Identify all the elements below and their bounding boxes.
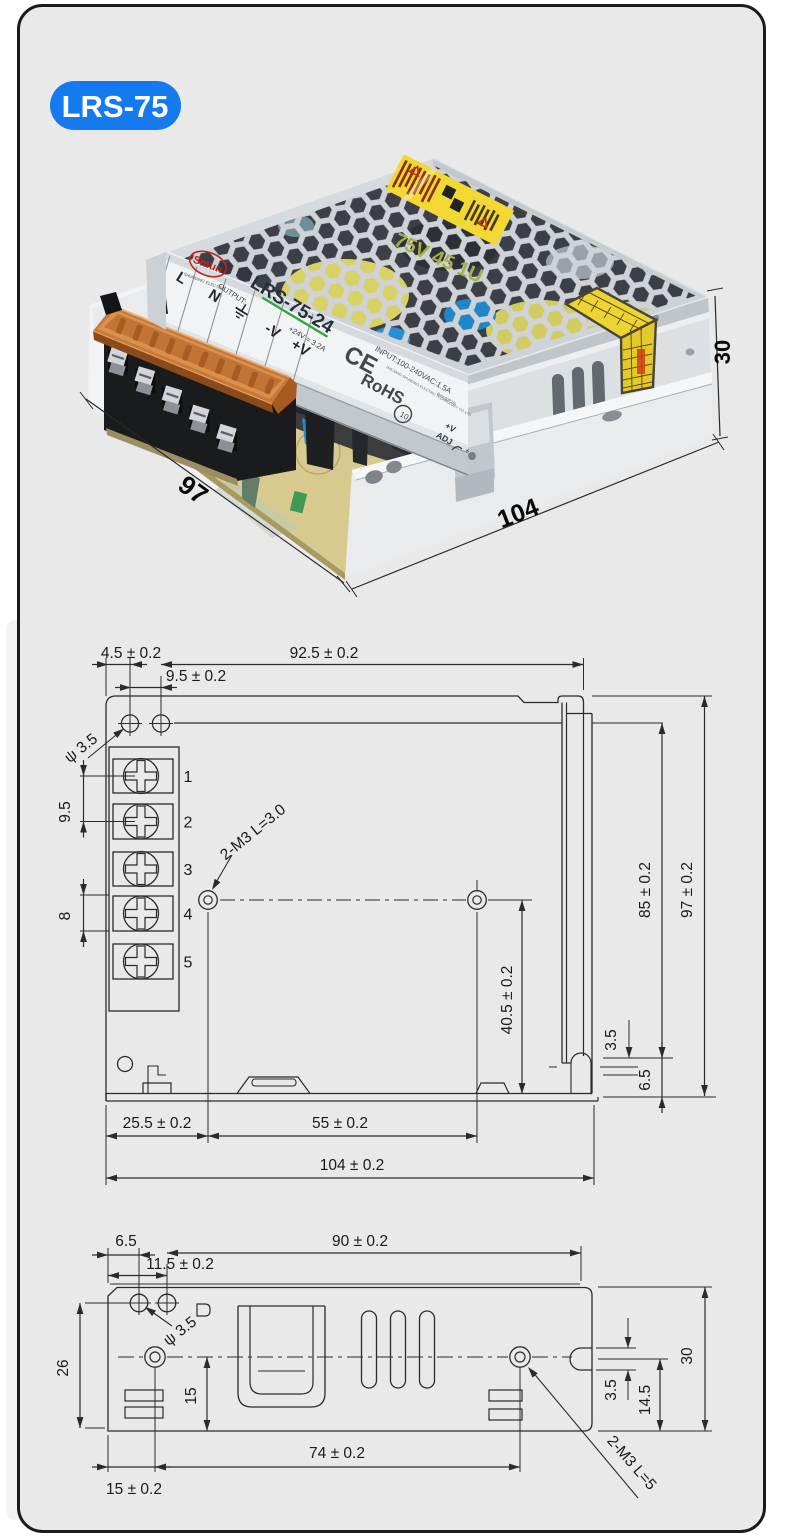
svg-text:85 ± 0.2: 85 ± 0.2 bbox=[637, 862, 654, 918]
svg-text:15: 15 bbox=[183, 1387, 200, 1404]
svg-text:3.5: 3.5 bbox=[603, 1379, 620, 1401]
svg-text:11.5 ± 0.2: 11.5 ± 0.2 bbox=[146, 1256, 214, 1273]
svg-text:40.5 ± 0.2: 40.5 ± 0.2 bbox=[499, 966, 516, 1035]
svg-text:30: 30 bbox=[679, 1347, 696, 1365]
svg-text:55 ± 0.2: 55 ± 0.2 bbox=[312, 1115, 368, 1132]
svg-text:15 ± 0.2: 15 ± 0.2 bbox=[106, 1481, 162, 1498]
svg-text:90 ± 0.2: 90 ± 0.2 bbox=[332, 1233, 388, 1250]
svg-text:9.5 ± 0.2: 9.5 ± 0.2 bbox=[166, 668, 226, 685]
svg-text:104 ± 0.2: 104 ± 0.2 bbox=[320, 1157, 385, 1174]
svg-text:3.5: 3.5 bbox=[603, 1029, 620, 1051]
svg-text:2: 2 bbox=[184, 815, 193, 832]
svg-text:9.5: 9.5 bbox=[57, 801, 74, 823]
svg-text:4: 4 bbox=[184, 907, 193, 924]
svg-text:97 ± 0.2: 97 ± 0.2 bbox=[679, 862, 696, 918]
svg-text:8: 8 bbox=[57, 912, 74, 921]
svg-text:25.5 ± 0.2: 25.5 ± 0.2 bbox=[123, 1115, 192, 1132]
svg-text:92.5 ± 0.2: 92.5 ± 0.2 bbox=[290, 645, 359, 662]
svg-text:26: 26 bbox=[55, 1359, 72, 1376]
svg-text:3: 3 bbox=[184, 862, 193, 879]
svg-text:1: 1 bbox=[184, 769, 193, 786]
svg-text:LRS-75: LRS-75 bbox=[62, 89, 169, 124]
svg-text:14.5: 14.5 bbox=[637, 1385, 654, 1415]
svg-text:74 ± 0.2: 74 ± 0.2 bbox=[309, 1445, 365, 1462]
svg-text:6.5: 6.5 bbox=[115, 1233, 137, 1250]
svg-text:5: 5 bbox=[184, 955, 193, 972]
svg-text:6.5: 6.5 bbox=[637, 1069, 654, 1091]
svg-text:4.5 ± 0.2: 4.5 ± 0.2 bbox=[101, 645, 161, 662]
svg-text:30: 30 bbox=[710, 340, 735, 364]
